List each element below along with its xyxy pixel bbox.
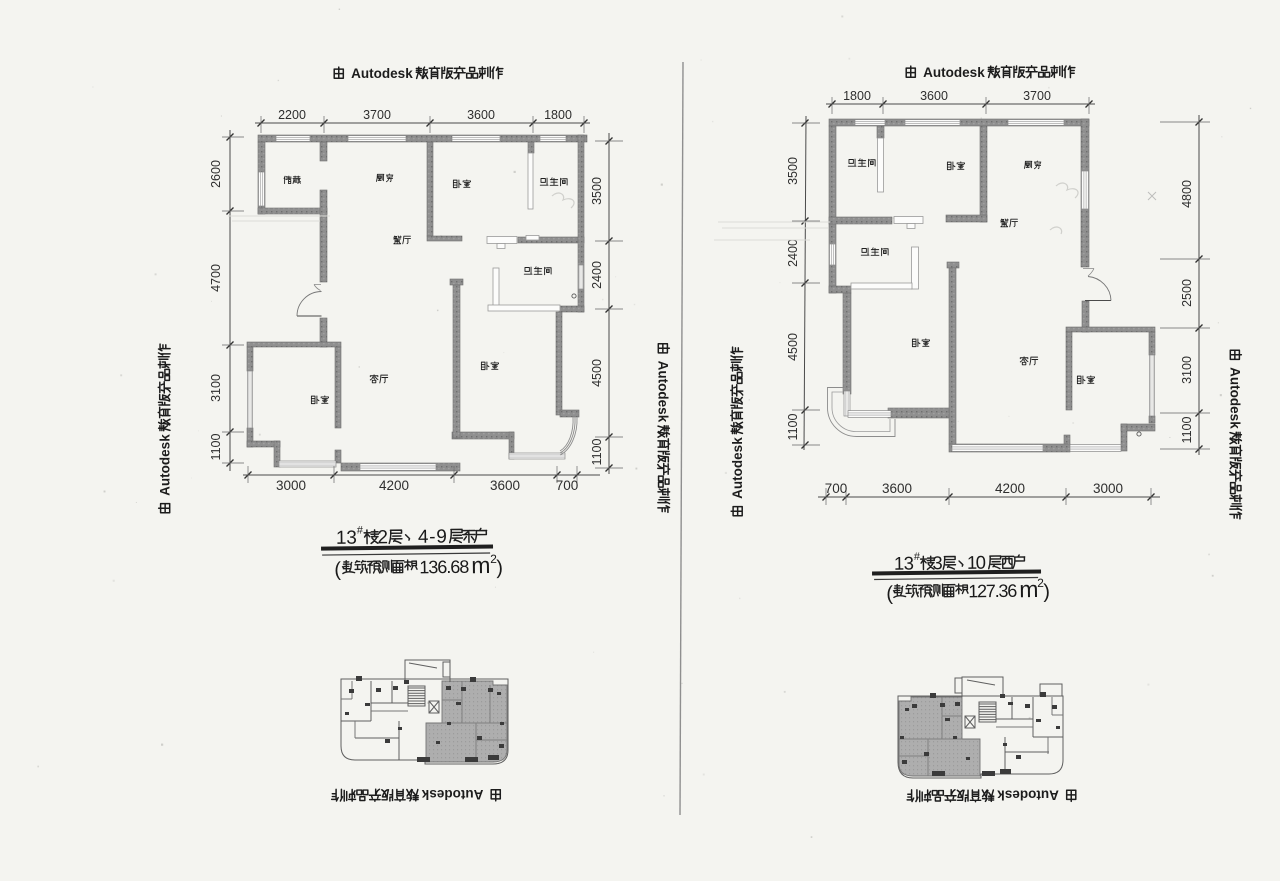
- svg-text:): ): [496, 557, 503, 579]
- svg-text:4200: 4200: [379, 478, 409, 493]
- svg-text:m: m: [471, 552, 490, 578]
- svg-text:1800: 1800: [843, 89, 871, 103]
- svg-text:3600: 3600: [882, 481, 912, 496]
- svg-text:#: #: [914, 551, 921, 563]
- svg-text:4-9: 4-9: [418, 527, 447, 548]
- svg-text:1800: 1800: [544, 108, 572, 122]
- svg-text:1100: 1100: [209, 434, 223, 461]
- svg-text:(: (: [334, 559, 341, 581]
- svg-text:1100: 1100: [786, 414, 800, 441]
- svg-text:Autodesk: Autodesk: [157, 434, 172, 496]
- svg-text:4700: 4700: [209, 264, 223, 292]
- svg-text:2500: 2500: [1180, 279, 1194, 307]
- svg-text:Autodesk: Autodesk: [656, 361, 671, 423]
- svg-text:3500: 3500: [786, 157, 800, 185]
- svg-text:2400: 2400: [786, 239, 800, 267]
- svg-text:127.36: 127.36: [968, 581, 1017, 602]
- svg-text:3700: 3700: [1023, 89, 1051, 103]
- svg-text:Autodesk: Autodesk: [997, 788, 1059, 803]
- svg-text:#: #: [357, 525, 364, 537]
- svg-text:2200: 2200: [278, 108, 306, 122]
- svg-text:4800: 4800: [1180, 180, 1194, 208]
- svg-text:Autodesk: Autodesk: [351, 66, 413, 81]
- svg-text:3600: 3600: [920, 89, 948, 103]
- svg-text:Autodesk: Autodesk: [730, 437, 745, 499]
- svg-text:m: m: [1019, 576, 1038, 602]
- svg-text:3700: 3700: [363, 108, 391, 122]
- svg-text:3100: 3100: [209, 374, 223, 402]
- svg-text:136.68: 136.68: [419, 557, 469, 578]
- svg-text:Autodesk: Autodesk: [923, 65, 985, 80]
- svg-text:13: 13: [336, 528, 357, 549]
- svg-text:Autodesk: Autodesk: [421, 787, 483, 802]
- svg-text:3600: 3600: [467, 108, 495, 122]
- svg-text:10: 10: [967, 552, 986, 573]
- svg-text:1100: 1100: [1180, 417, 1194, 444]
- svg-text:3100: 3100: [1180, 356, 1194, 384]
- svg-text:3: 3: [932, 552, 943, 573]
- svg-text:13: 13: [894, 553, 914, 574]
- svg-text:(: (: [886, 583, 893, 605]
- svg-text:3000: 3000: [276, 478, 306, 493]
- svg-text:4500: 4500: [786, 333, 800, 361]
- svg-text:Autodesk: Autodesk: [1228, 367, 1243, 429]
- svg-text:4500: 4500: [590, 359, 604, 387]
- svg-text:2400: 2400: [590, 261, 604, 289]
- svg-text:3000: 3000: [1093, 481, 1123, 496]
- svg-text:4200: 4200: [995, 481, 1025, 496]
- svg-text:1100: 1100: [590, 439, 604, 466]
- svg-text:700: 700: [825, 481, 848, 496]
- svg-text:2600: 2600: [209, 160, 223, 188]
- svg-text:3600: 3600: [490, 478, 520, 493]
- svg-text:700: 700: [556, 478, 579, 493]
- svg-text:2: 2: [377, 527, 388, 548]
- svg-text:3500: 3500: [590, 177, 604, 205]
- svg-text:): ): [1043, 581, 1050, 603]
